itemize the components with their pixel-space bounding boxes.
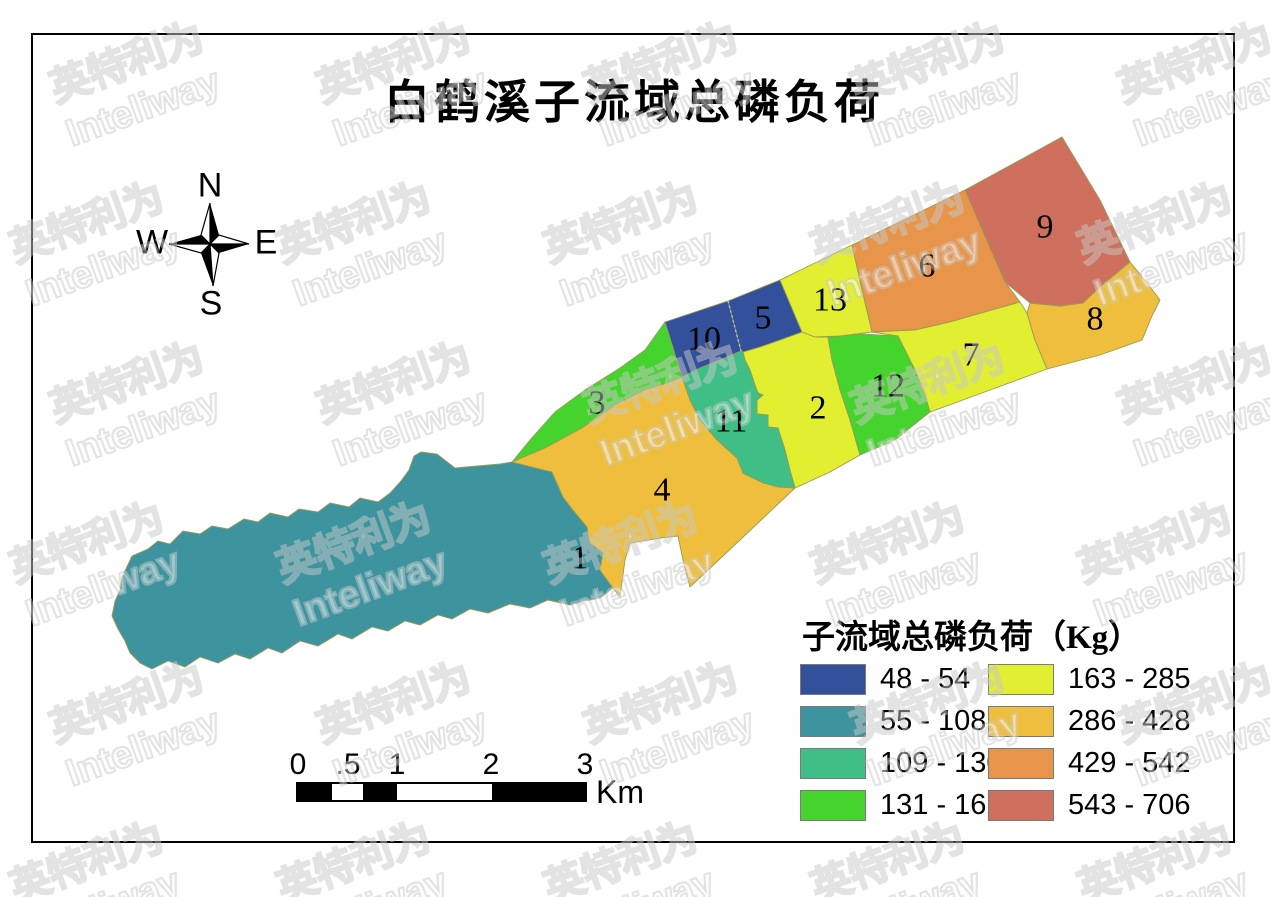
map-page: 白鹤溪子流域总磷负荷 12345678910111213 N S W E 子流域… (0, 0, 1270, 897)
compass-south-label: S (200, 285, 223, 324)
legend-swatch (800, 748, 866, 779)
legend-range-label: 48 - 54 (880, 663, 970, 696)
legend-title: 子流域总磷负荷（Kg） (802, 610, 1141, 658)
legend-swatch (988, 664, 1054, 695)
legend-range-label: 429 - 542 (1068, 747, 1191, 780)
scalebar-tick-0: 0 (290, 748, 307, 782)
legend-item: 163 - 285 (988, 664, 1191, 695)
legend-swatch (988, 748, 1054, 779)
compass-east-label: E (255, 224, 278, 263)
scalebar-tick-3: 3 (577, 748, 594, 782)
legend-item: 48 - 54 (800, 664, 1003, 695)
legend-range-label: 286 - 428 (1068, 705, 1191, 738)
scalebar-tick-1: 1 (389, 748, 406, 782)
legend-item: 55 - 108 (800, 706, 1003, 737)
compass-west-label: W (136, 224, 168, 263)
scalebar-tick-.5: .5 (335, 748, 360, 782)
scalebar-tick-2: 2 (483, 748, 500, 782)
legend-item: 543 - 706 (988, 790, 1191, 821)
compass-north-label: N (198, 167, 223, 206)
legend-item: 109 - 130 (800, 748, 1003, 779)
legend-swatch (800, 790, 866, 821)
scalebar-segment (397, 784, 492, 800)
legend-swatch (988, 706, 1054, 737)
legend-swatch (800, 706, 866, 737)
scalebar-unit-label: Km (596, 774, 644, 811)
legend-swatch (988, 790, 1054, 821)
scalebar-segment (363, 784, 397, 800)
legend-item: 429 - 542 (988, 748, 1191, 779)
legend-column-left: 48 - 5455 - 108109 - 130131 - 162 (800, 664, 1003, 832)
legend-range-label: 55 - 108 (880, 705, 986, 738)
legend-item: 131 - 162 (800, 790, 1003, 821)
scalebar-segment (332, 784, 363, 800)
compass-star (169, 203, 249, 286)
legend-item: 286 - 428 (988, 706, 1191, 737)
scalebar (296, 782, 587, 802)
legend-column-right: 163 - 285286 - 428429 - 542543 - 706 (988, 664, 1191, 832)
legend-range-label: 109 - 130 (880, 747, 1003, 780)
legend-range-label: 543 - 706 (1068, 789, 1191, 822)
legend-swatch (800, 664, 866, 695)
scalebar-segment (298, 784, 332, 800)
legend-range-label: 131 - 162 (880, 789, 1003, 822)
scalebar-segment (492, 784, 585, 800)
legend-range-label: 163 - 285 (1068, 663, 1191, 696)
